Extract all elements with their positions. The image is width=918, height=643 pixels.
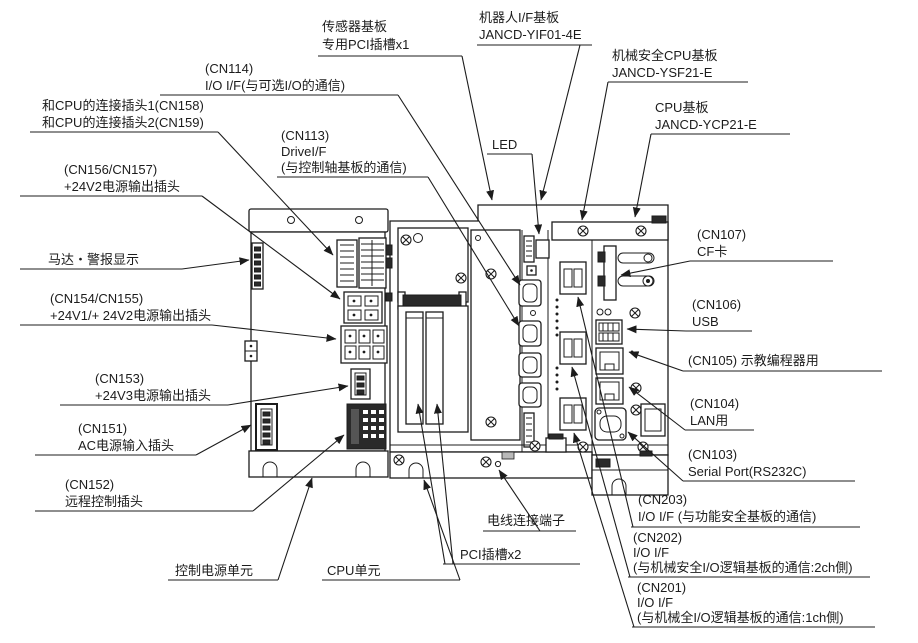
label-cn154-2: +24V1/+ 24V2电源输出插头 xyxy=(50,308,211,323)
label-cn158-1: 和CPU的连接插头1(CN158) xyxy=(42,98,204,113)
label-robot-if-1: 机器人I/F基板 xyxy=(479,10,559,25)
label-cpu-board-2: JANCD-YCP21-E xyxy=(655,117,757,132)
cn114-connector xyxy=(519,280,541,306)
motor-alarm-led-strip xyxy=(252,243,263,289)
blank-plate xyxy=(641,404,665,436)
cn151-ac-input-connector xyxy=(256,404,277,450)
label-cn151-2: AC电源输入插头 xyxy=(78,438,174,453)
label-cn106-2: USB xyxy=(692,314,719,329)
label-control-power-unit: 控制电源单元 xyxy=(175,563,253,578)
label-sensor-board-1: 传感器基板 xyxy=(322,19,387,34)
label-safety-cpu-2: JANCD-YSF21-E xyxy=(612,65,713,80)
pci-slot-covers xyxy=(398,306,468,432)
label-cn113-2: DriveI/F xyxy=(281,144,327,159)
cn202-connector xyxy=(560,332,586,364)
label-cn203-1: (CN203) xyxy=(638,492,687,507)
label-cn151-1: (CN151) xyxy=(78,421,127,436)
pci-retainer-bar xyxy=(403,295,461,306)
label-sensor-board-2: 专用PCI插槽x1 xyxy=(322,37,409,52)
label-cn113-3: (与控制轴基板的通信) xyxy=(281,160,407,175)
label-cn202-1: (CN202) xyxy=(633,530,682,545)
drive-if-connector-2 xyxy=(519,353,541,377)
label-cn202-3: (与机械安全I/O逻辑基板的通信:2ch側) xyxy=(633,560,853,575)
label-cn201-2: I/O I/F xyxy=(637,595,673,610)
label-cn201-1: (CN201) xyxy=(637,580,686,595)
label-cn113-1: (CN113) xyxy=(281,128,329,143)
label-cn158-2: 和CPU的连接插头2(CN159) xyxy=(42,115,204,130)
label-safety-cpu-1: 机械安全CPU基板 xyxy=(612,48,717,63)
upper-sub-panel xyxy=(398,228,468,302)
cn152-remote-connector xyxy=(347,404,386,449)
label-cn107-1: (CN107) xyxy=(697,227,746,242)
diagram-canvas: 传感器基板 专用PCI插槽x1 机器人I/F基板 JANCD-YIF01-4E … xyxy=(0,0,918,643)
label-motor-alarm: 马达・警报显示 xyxy=(48,252,139,267)
label-cn114-2: I/O I/F(与可选I/O的通信) xyxy=(205,78,345,93)
pci-slot-cover-2 xyxy=(426,312,443,424)
cn154-cn155-connector xyxy=(341,326,387,363)
label-cn153-2: +24V3电源输出插头 xyxy=(95,388,211,403)
usb-connector xyxy=(596,320,622,344)
pci-slot-cover-1 xyxy=(406,312,423,424)
label-cn106-1: (CN106) xyxy=(692,297,741,312)
label-pci-slots: PCI插槽x2 xyxy=(460,547,521,562)
label-cn104-1: (CN104) xyxy=(690,396,739,411)
label-led: LED xyxy=(492,137,517,152)
drive-if-connector-3 xyxy=(519,383,541,407)
cn156-cn157-connector xyxy=(344,292,382,323)
label-cn156-2: +24V2电源输出插头 xyxy=(64,179,180,194)
label-cn104-2: LAN用 xyxy=(690,413,728,428)
led-connector xyxy=(524,236,549,262)
label-cn154-1: (CN154/CN155) xyxy=(50,291,143,306)
cn158-cn159-connectors xyxy=(337,238,386,288)
label-cn105: (CN105) 示教编程器用 xyxy=(688,353,819,368)
label-cn153-1: (CN153) xyxy=(95,371,144,386)
cn113-connector xyxy=(519,321,541,346)
sensor-pci-panel xyxy=(471,230,520,440)
label-cn156-1: (CN156/CN157) xyxy=(64,162,157,177)
label-cn152-2: 远程控制插头 xyxy=(65,494,143,509)
controller-rear-view-diagram: 传感器基板 专用PCI插槽x1 机器人I/F基板 JANCD-YIF01-4E … xyxy=(0,0,918,643)
label-cn152-1: (CN152) xyxy=(65,477,114,492)
label-cn107-2: CF卡 xyxy=(697,244,727,259)
label-cn201-3: (与机械全I/O逻辑基板的通信:1ch側) xyxy=(637,610,844,625)
label-cn202-2: I/O I/F xyxy=(633,545,669,560)
label-wire-terminal: 电线连接端子 xyxy=(487,513,565,528)
cn203-connector xyxy=(560,262,586,294)
label-cn114-1: (CN114) xyxy=(205,61,253,76)
label-cn203-2: I/O I/F (与功能安全基板的通信) xyxy=(638,509,816,524)
cpu-unit-panel xyxy=(386,205,668,495)
label-cn103-2: Serial Port(RS232C) xyxy=(688,464,807,479)
side-connector-small xyxy=(245,341,257,361)
label-cpu-unit: CPU单元 xyxy=(327,563,380,578)
cn153-connector xyxy=(351,369,370,399)
control-power-unit-panel xyxy=(245,209,388,477)
label-robot-if-2: JANCD-YIF01-4E xyxy=(479,27,582,42)
label-cpu-board-1: CPU基板 xyxy=(655,100,708,115)
label-cn103-1: (CN103) xyxy=(688,447,737,462)
